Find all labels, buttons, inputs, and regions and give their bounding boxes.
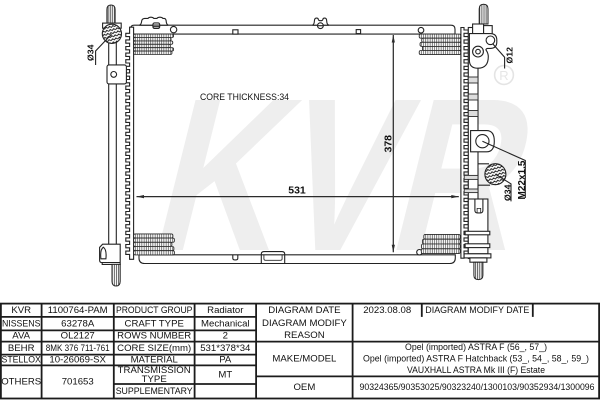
svg-text:1100764-PAM: 1100764-PAM [48,305,108,316]
svg-text:BEHR: BEHR [8,343,35,354]
svg-text:MAKE/MODEL: MAKE/MODEL [272,354,337,365]
svg-text:Ø34: Ø34 [503,184,513,201]
svg-text:DIAGRAM MODIFY: DIAGRAM MODIFY [262,318,347,329]
svg-text:378: 378 [383,135,395,153]
svg-text:MT: MT [218,369,232,380]
svg-text:90324365/90353025/90323240/130: 90324365/90353025/90323240/1300103/90352… [360,382,595,393]
svg-text:2023.08.08: 2023.08.08 [363,305,411,316]
svg-text:M22x1.5: M22x1.5 [517,160,528,199]
svg-text:63278A: 63278A [61,318,95,329]
svg-text:Mechanical: Mechanical [201,318,250,329]
svg-text:CORE THICKNESS:34: CORE THICKNESS:34 [200,92,290,103]
svg-text:PRODUCT GROUP: PRODUCT GROUP [116,305,193,316]
svg-text:2: 2 [223,331,228,342]
svg-text:DIAGRAM DATE: DIAGRAM DATE [268,305,340,316]
svg-text:CORE SIZE(mm): CORE SIZE(mm) [117,343,191,354]
svg-text:CRAFT TYPE: CRAFT TYPE [125,318,184,329]
svg-text:SUPPLEMENTARY: SUPPLEMENTARY [116,386,194,397]
svg-text:Opel (imported) ASTRA F (56_,: Opel (imported) ASTRA F (56_, 57_) [405,342,547,353]
svg-text:Ø34: Ø34 [86,44,96,61]
svg-text:REASON: REASON [284,330,325,341]
svg-text:Opel (imported) ASTRA F Hatchb: Opel (imported) ASTRA F Hatchback (53_, … [363,354,589,365]
svg-text:531: 531 [288,184,306,196]
svg-text:STELLOX: STELLOX [2,355,42,366]
svg-text:TYPE: TYPE [142,374,167,385]
svg-text:531*378*34: 531*378*34 [200,343,251,354]
svg-text:DIAGRAM MODIFY DATE: DIAGRAM MODIFY DATE [425,305,529,316]
svg-text:R: R [499,68,508,83]
svg-text:VAUXHALL ASTRA Mk III (F) Esta: VAUXHALL ASTRA Mk III (F) Estate [407,365,545,376]
svg-text:Ø12: Ø12 [505,47,515,64]
svg-text:NISSENS: NISSENS [2,318,41,329]
svg-text:701653: 701653 [62,377,94,388]
svg-text:OEM: OEM [293,382,315,393]
svg-text:Radiator: Radiator [207,305,244,316]
svg-text:10-26069-SX: 10-26069-SX [49,355,106,366]
svg-text:PA: PA [219,355,232,366]
svg-text:OL2127: OL2127 [61,331,95,342]
svg-text:OTHERS: OTHERS [1,377,41,388]
svg-text:8MK 376 711-761: 8MK 376 711-761 [46,343,110,354]
svg-text:ROWS NUMBER: ROWS NUMBER [117,331,191,342]
svg-text:KVR: KVR [11,305,31,316]
svg-text:AVA: AVA [12,331,30,342]
